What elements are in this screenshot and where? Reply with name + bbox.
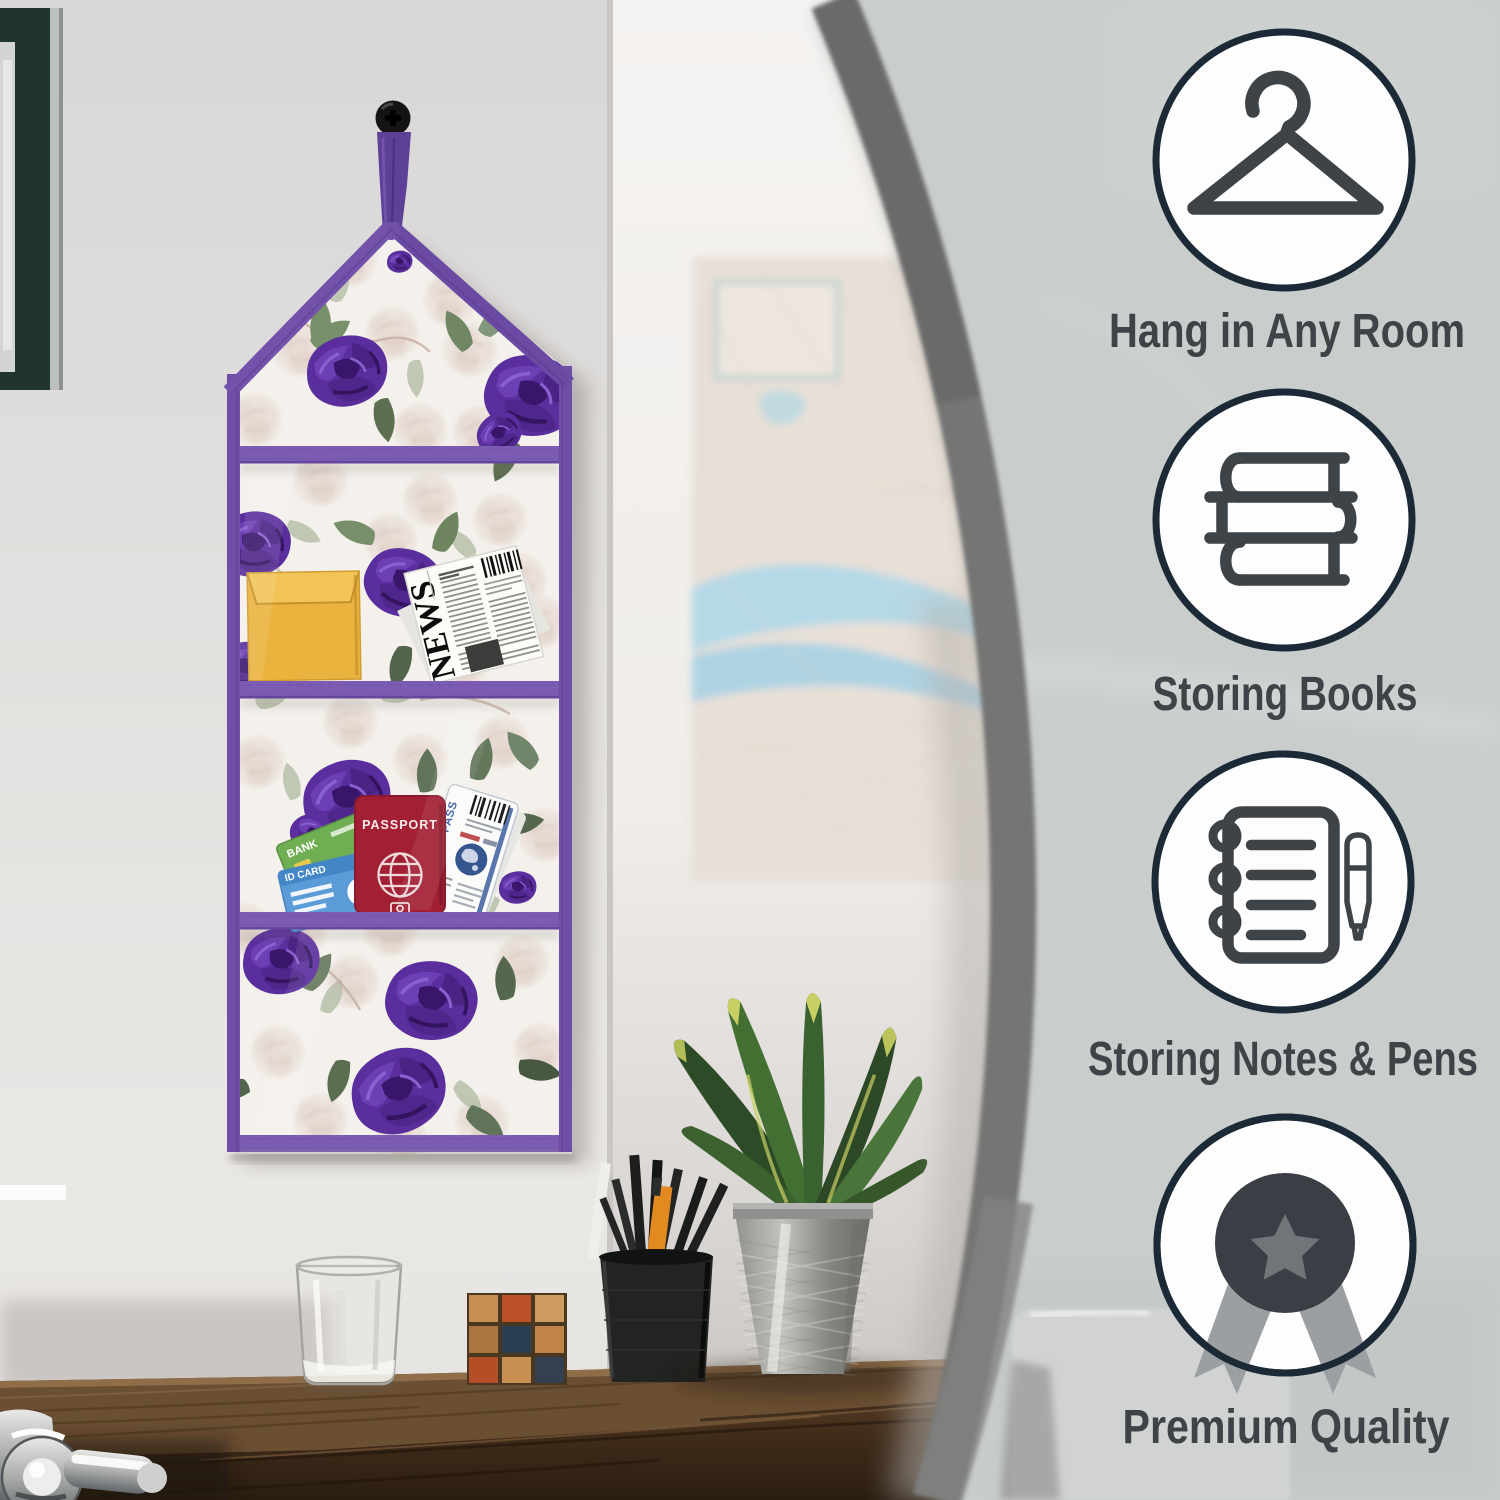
svg-text:Premium Quality: Premium Quality	[1123, 1401, 1450, 1454]
svg-text:Storing Notes & Pens: Storing Notes & Pens	[1088, 1033, 1478, 1086]
svg-text:Storing Books: Storing Books	[1153, 668, 1418, 721]
svg-text:Hang in Any Room: Hang in Any Room	[1109, 305, 1465, 358]
